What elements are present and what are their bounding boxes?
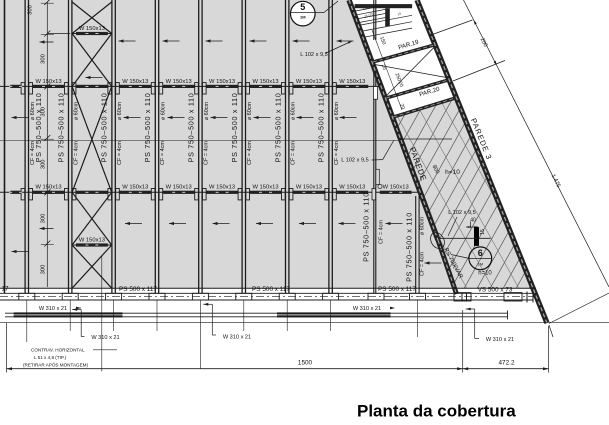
svg-text:CF = 4cm: CF = 4cm xyxy=(379,220,385,244)
svg-text:PS 750–500 x 110: PS 750–500 x 110 xyxy=(100,93,109,163)
svg-text:5: 5 xyxy=(300,2,305,12)
svg-text:PS 750–500 x 110: PS 750–500 x 110 xyxy=(143,93,152,163)
svg-text:W 310 x 21: W 310 x 21 xyxy=(223,335,251,341)
svg-text:PS 750–500 x 110: PS 750–500 x 110 xyxy=(317,93,326,163)
svg-text:W 150x13: W 150x13 xyxy=(339,185,365,191)
svg-text:PS 750–500 x 110: PS 750–500 x 110 xyxy=(273,93,282,163)
svg-text:300: 300 xyxy=(41,54,47,64)
svg-text:300: 300 xyxy=(41,107,47,117)
svg-text:PS 750–500 x 110: PS 750–500 x 110 xyxy=(362,192,371,262)
svg-text:W 150x13: W 150x13 xyxy=(252,79,278,85)
svg-text:⌀ 60cm: ⌀ 60cm xyxy=(160,101,166,120)
svg-text:W 150x13: W 150x13 xyxy=(35,79,61,85)
svg-text:⌀ 60cm: ⌀ 60cm xyxy=(247,101,253,120)
svg-text:W 150x13: W 150x13 xyxy=(79,26,105,32)
svg-text:300: 300 xyxy=(28,5,34,15)
svg-text:W 150x13: W 150x13 xyxy=(296,185,322,191)
svg-text:300: 300 xyxy=(41,214,47,224)
svg-text:W 150x13: W 150x13 xyxy=(383,185,409,191)
svg-text:1M: 1M xyxy=(478,262,484,267)
svg-text:CF = 4cm: CF = 4cm xyxy=(204,141,210,165)
svg-text:CF = 4cm: CF = 4cm xyxy=(419,252,425,276)
svg-text:W 150x13: W 150x13 xyxy=(339,79,365,85)
svg-text:⌀ 60cm: ⌀ 60cm xyxy=(419,216,425,235)
svg-text:⌀ 60cm: ⌀ 60cm xyxy=(117,101,123,120)
svg-text:1500: 1500 xyxy=(298,359,313,366)
svg-text:300: 300 xyxy=(41,265,47,275)
svg-text:CF = 4cm: CF = 4cm xyxy=(334,141,340,165)
svg-text:CF = 4cm: CF = 4cm xyxy=(117,141,123,165)
svg-text:⌀ 60cm: ⌀ 60cm xyxy=(30,101,36,120)
svg-text:6: 6 xyxy=(478,248,483,258)
svg-text:300: 300 xyxy=(41,159,47,169)
svg-text:W 310 x 21: W 310 x 21 xyxy=(353,306,381,312)
svg-text:CONTRAV. HORIZONTAL: CONTRAV. HORIZONTAL xyxy=(31,348,85,353)
svg-text:W 150x13: W 150x13 xyxy=(209,185,235,191)
svg-text:CF = 4cm: CF = 4cm xyxy=(30,141,36,165)
svg-text:⌀ 60cm: ⌀ 60cm xyxy=(291,101,297,120)
svg-text:W 310 x 21: W 310 x 21 xyxy=(486,337,514,343)
svg-text:CF = 4cm: CF = 4cm xyxy=(290,141,296,165)
svg-text:15: 15 xyxy=(480,229,486,235)
svg-text:⌀ 60cm: ⌀ 60cm xyxy=(334,101,340,120)
svg-text:472.2: 472.2 xyxy=(499,359,515,366)
svg-text:⌀ 60cm: ⌀ 60cm xyxy=(204,101,210,120)
svg-text:17: 17 xyxy=(1,285,9,292)
svg-text:1M: 1M xyxy=(300,15,306,20)
svg-text:L 51 x 4,8 (TIP.): L 51 x 4,8 (TIP.) xyxy=(34,355,67,360)
svg-text:CF = 4cm: CF = 4cm xyxy=(73,141,79,165)
svg-text:40: 40 xyxy=(470,218,476,224)
svg-text:W 150x13: W 150x13 xyxy=(252,185,278,191)
svg-text:PS 750–500 x 110: PS 750–500 x 110 xyxy=(230,93,239,163)
svg-text:PS 750–500 x 110: PS 750–500 x 110 xyxy=(404,212,413,282)
svg-text:W 150x13: W 150x13 xyxy=(166,185,192,191)
svg-text:W 150x13: W 150x13 xyxy=(296,79,322,85)
svg-text:W 150x13: W 150x13 xyxy=(79,237,105,243)
svg-text:W 150x13: W 150x13 xyxy=(35,185,61,191)
svg-text:W 150x13: W 150x13 xyxy=(209,79,235,85)
svg-text:PS 500 x 117: PS 500 x 117 xyxy=(252,286,290,293)
svg-text:CF = 4cm: CF = 4cm xyxy=(160,141,166,165)
svg-text:L 102 x 9,5: L 102 x 9,5 xyxy=(300,52,327,58)
svg-text:Planta da cobertura: Planta da cobertura xyxy=(357,402,516,421)
svg-text:W 150x13: W 150x13 xyxy=(166,79,192,85)
svg-text:h=10: h=10 xyxy=(445,169,460,176)
svg-text:PS 500 x 117: PS 500 x 117 xyxy=(119,286,157,293)
svg-text:W 310 x 21: W 310 x 21 xyxy=(39,306,67,312)
svg-text:L 102 x 9,5: L 102 x 9,5 xyxy=(341,158,368,164)
svg-text:W 310 x 21: W 310 x 21 xyxy=(91,335,119,341)
svg-text:PS 750–500 x 110: PS 750–500 x 110 xyxy=(187,93,196,163)
svg-text:PS 500 x 117: PS 500 x 117 xyxy=(378,286,416,293)
svg-text:(RETIRAR APÓS MONTAGEM): (RETIRAR APÓS MONTAGEM) xyxy=(23,362,88,368)
svg-text:h=10: h=10 xyxy=(478,271,492,277)
svg-text:W 150x13: W 150x13 xyxy=(122,79,148,85)
svg-text:L 102 x 9,5: L 102 x 9,5 xyxy=(448,210,475,216)
svg-text:CF = 4cm: CF = 4cm xyxy=(247,141,253,165)
svg-text:PS 750–500 x 110: PS 750–500 x 110 xyxy=(56,93,65,163)
svg-text:W 150x13: W 150x13 xyxy=(122,185,148,191)
